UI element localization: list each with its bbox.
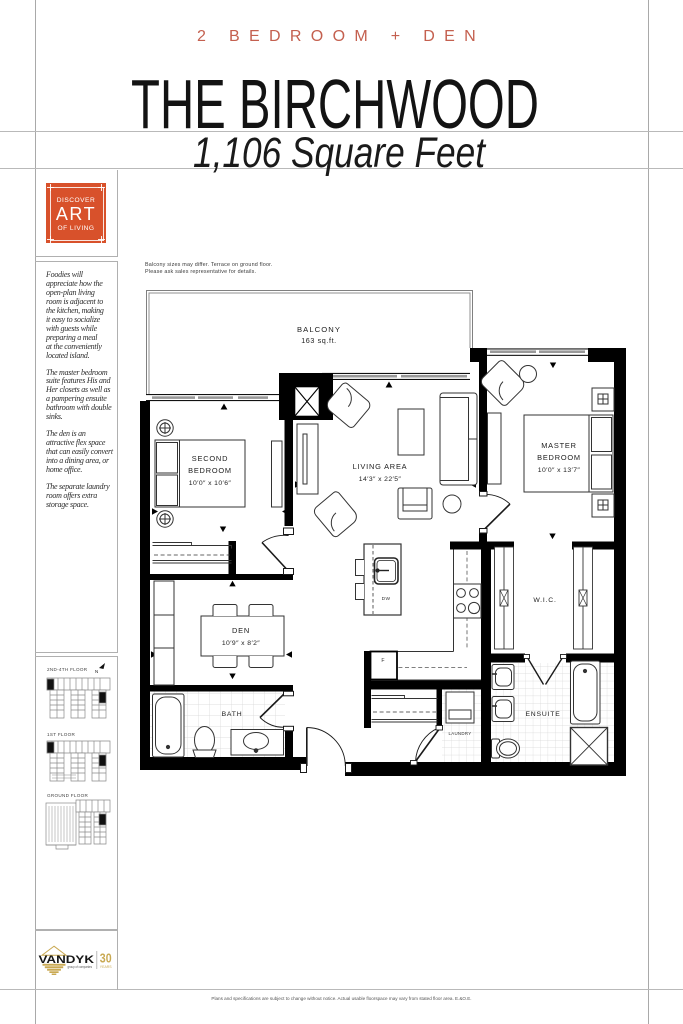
svg-text:14′3″ x 22′5″: 14′3″ x 22′5″ xyxy=(359,476,402,483)
svg-text:W.I.C.: W.I.C. xyxy=(533,597,556,604)
svg-text:ENSUITE: ENSUITE xyxy=(525,711,560,718)
svg-text:SECOND: SECOND xyxy=(192,454,228,463)
svg-text:LAUNDRY: LAUNDRY xyxy=(448,731,471,736)
svg-text:DEN: DEN xyxy=(232,626,250,635)
svg-text:MASTER: MASTER xyxy=(541,441,577,450)
svg-text:YEARS: YEARS xyxy=(100,964,112,969)
svg-text:N: N xyxy=(95,669,98,674)
svg-text:F: F xyxy=(381,658,384,664)
svg-text:163 sq.ft.: 163 sq.ft. xyxy=(301,336,337,345)
svg-text:10′0″ x 10′6″: 10′0″ x 10′6″ xyxy=(189,480,232,487)
svg-text:1ST FLOOR: 1ST FLOOR xyxy=(47,732,76,737)
svg-text:BATH: BATH xyxy=(222,711,243,718)
svg-text:BEDROOM: BEDROOM xyxy=(537,453,581,462)
svg-text:2ND-4TH FLOOR: 2ND-4TH FLOOR xyxy=(47,667,88,672)
svg-text:LIVING AREA: LIVING AREA xyxy=(353,462,408,471)
svg-text:GROUND FLOOR: GROUND FLOOR xyxy=(47,793,88,798)
svg-text:BEDROOM: BEDROOM xyxy=(188,466,232,475)
svg-text:10′0″ x 13′7″: 10′0″ x 13′7″ xyxy=(538,467,581,474)
svg-text:BALCONY: BALCONY xyxy=(297,325,341,334)
svg-text:group of companies: group of companies xyxy=(68,965,93,969)
svg-text:DW: DW xyxy=(382,596,391,602)
svg-text:10′9″ x 8′2″: 10′9″ x 8′2″ xyxy=(222,640,260,647)
